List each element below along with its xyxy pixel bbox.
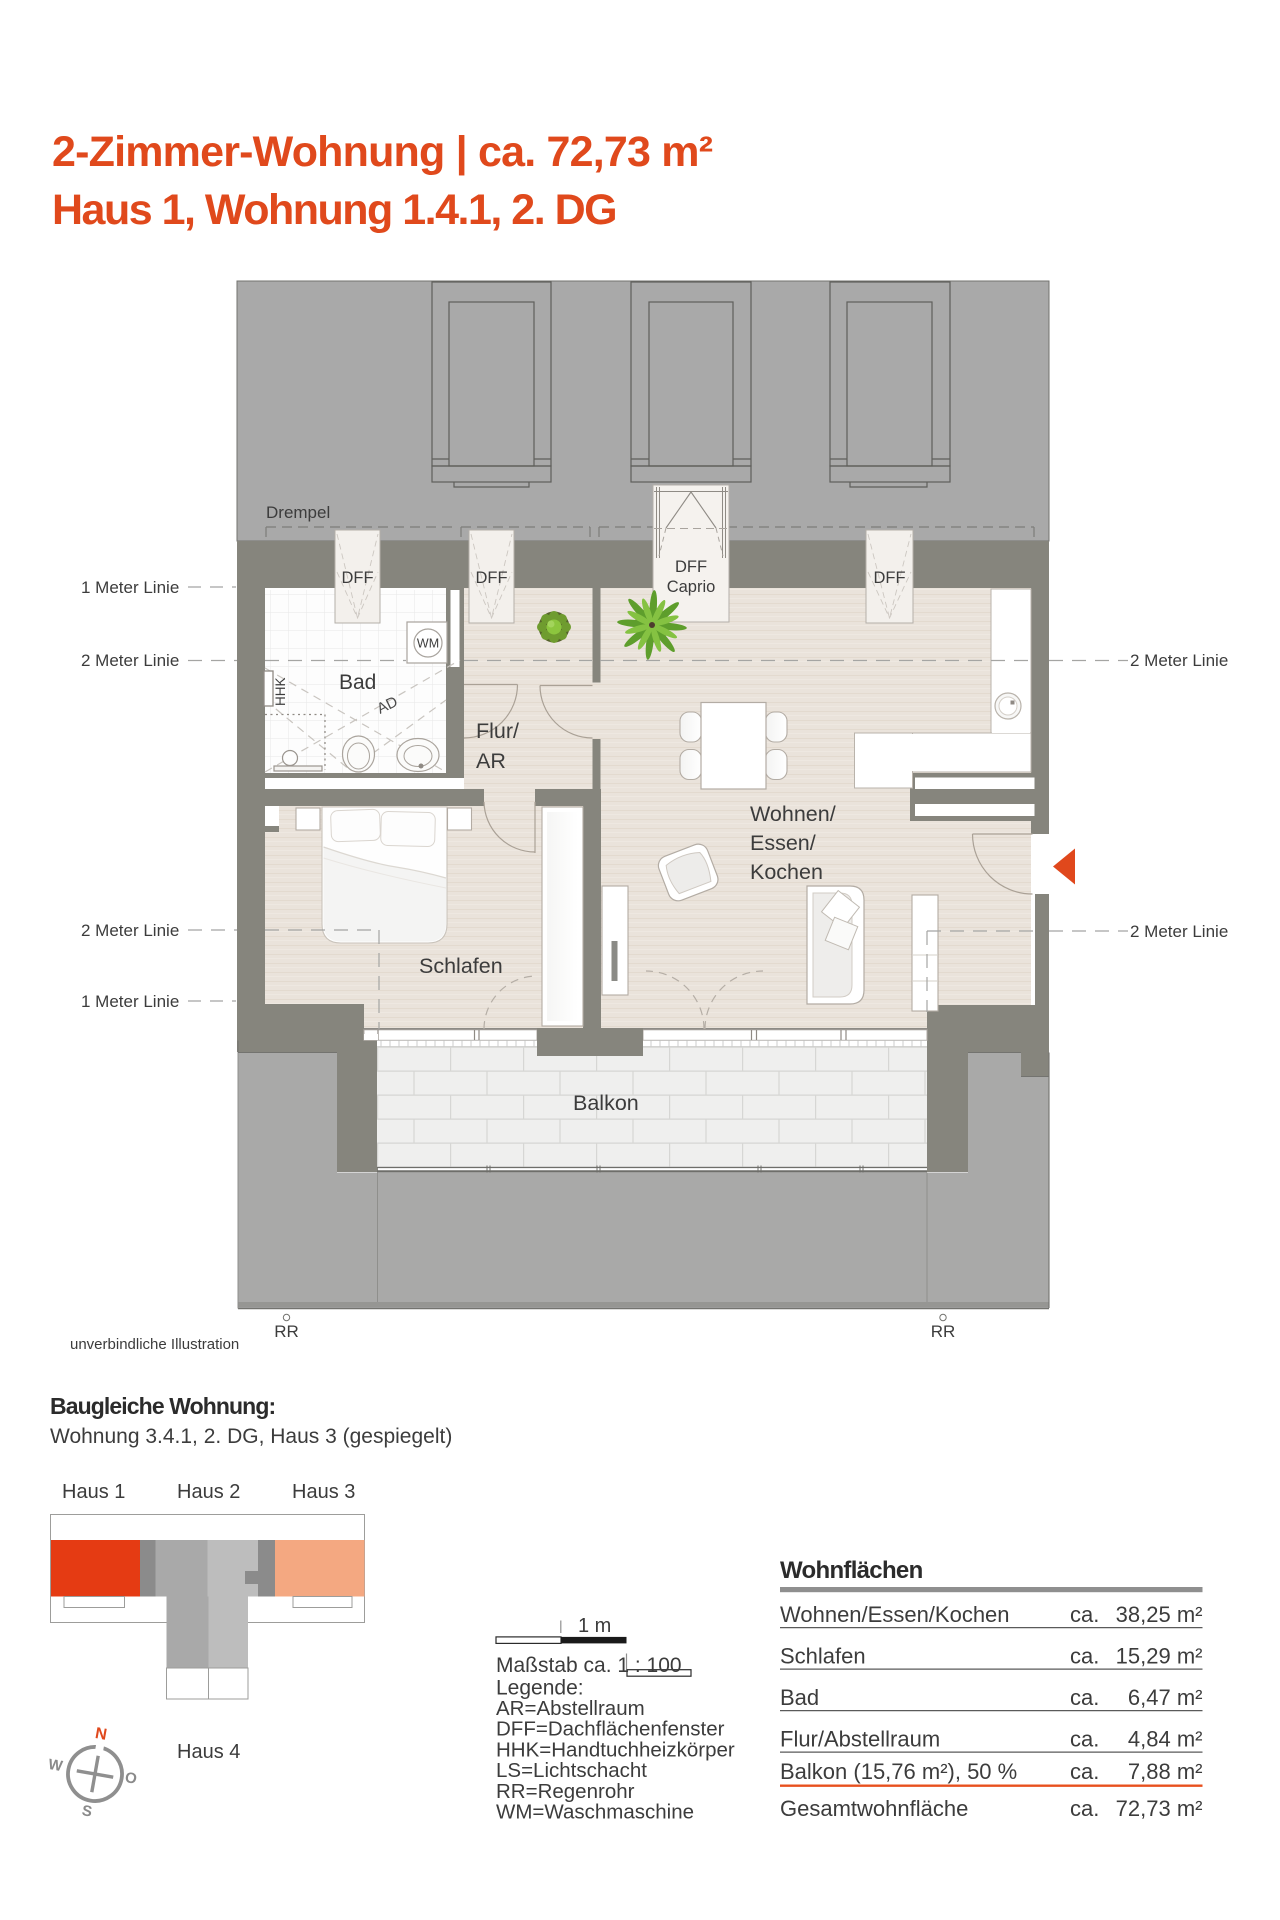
svg-text:Schlafen: Schlafen [419, 954, 503, 978]
svg-text:ca.: ca. [1070, 1644, 1099, 1669]
svg-text:ca.: ca. [1070, 1602, 1099, 1627]
svg-text:WM: WM [417, 637, 439, 651]
svg-text:Kochen: Kochen [750, 860, 823, 884]
svg-text:Bad: Bad [780, 1685, 819, 1710]
svg-text:RR=Regenrohr: RR=Regenrohr [496, 1780, 635, 1803]
svg-text:Maßstab ca. 1 : 100: Maßstab ca. 1 : 100 [496, 1654, 682, 1677]
svg-text:ca.: ca. [1070, 1759, 1099, 1784]
svg-text:Bad: Bad [339, 671, 376, 694]
svg-text:1 Meter Linie: 1 Meter Linie [81, 578, 179, 597]
svg-text:2-Zimmer-Wohnung | ca. 72,73 m: 2-Zimmer-Wohnung | ca. 72,73 m² [52, 128, 713, 176]
svg-text:ca.: ca. [1070, 1685, 1099, 1710]
svg-text:AR=Abstellraum: AR=Abstellraum [496, 1697, 645, 1720]
svg-text:38,25 m²: 38,25 m² [1116, 1602, 1203, 1627]
svg-text:DFF: DFF [675, 558, 707, 576]
svg-text:7,88 m²: 7,88 m² [1128, 1759, 1203, 1784]
svg-text:Wohnflächen: Wohnflächen [780, 1557, 923, 1584]
svg-text:4,84 m²: 4,84 m² [1128, 1727, 1203, 1752]
svg-text:Haus 1, Wohnung 1.4.1, 2. DG: Haus 1, Wohnung 1.4.1, 2. DG [52, 186, 616, 234]
svg-text:Baugleiche Wohnung:: Baugleiche Wohnung: [50, 1393, 275, 1419]
svg-text:Wohnen/Essen/Kochen: Wohnen/Essen/Kochen [780, 1602, 1010, 1627]
svg-text:RR: RR [931, 1322, 956, 1341]
svg-text:AR: AR [476, 749, 506, 773]
svg-text:HHK: HHK [273, 677, 288, 706]
svg-text:72,73 m²: 72,73 m² [1116, 1796, 1203, 1821]
svg-text:Haus 4: Haus 4 [177, 1741, 240, 1763]
svg-text:6,47 m²: 6,47 m² [1128, 1685, 1203, 1710]
svg-text:15,29 m²: 15,29 m² [1116, 1644, 1203, 1669]
svg-text:LS=Lichtschacht: LS=Lichtschacht [496, 1759, 647, 1782]
svg-text:DFF: DFF [873, 569, 905, 587]
svg-text:RR: RR [274, 1322, 299, 1341]
svg-text:1 m: 1 m [578, 1615, 611, 1637]
svg-text:ca.: ca. [1070, 1727, 1099, 1752]
svg-text:DFF: DFF [341, 569, 373, 587]
svg-text:WM=Waschmaschine: WM=Waschmaschine [496, 1801, 694, 1824]
svg-text:Balkon (15,76 m²), 50 %: Balkon (15,76 m²), 50 % [780, 1759, 1017, 1784]
svg-text:Schlafen: Schlafen [780, 1644, 866, 1669]
svg-text:2 Meter Linie: 2 Meter Linie [81, 921, 179, 940]
svg-text:Essen/: Essen/ [750, 831, 816, 855]
svg-text:ca.: ca. [1070, 1796, 1099, 1821]
svg-text:Flur/: Flur/ [476, 719, 519, 743]
svg-text:2 Meter Linie: 2 Meter Linie [1130, 922, 1228, 941]
svg-text:Wohnung 3.4.1, 2. DG, Haus 3 (: Wohnung 3.4.1, 2. DG, Haus 3 (gespiegelt… [50, 1425, 452, 1448]
svg-text:Balkon: Balkon [573, 1091, 639, 1115]
svg-text:DFF: DFF [475, 569, 507, 587]
svg-text:1 Meter Linie: 1 Meter Linie [81, 992, 179, 1011]
svg-text:HHK=Handtuchheizkörper: HHK=Handtuchheizkörper [496, 1738, 735, 1761]
svg-text:Haus 1: Haus 1 [62, 1481, 125, 1503]
svg-text:Drempel: Drempel [266, 503, 330, 522]
svg-text:Haus 3: Haus 3 [292, 1481, 355, 1503]
svg-text:2 Meter Linie: 2 Meter Linie [1130, 651, 1228, 670]
svg-text:Wohnen/: Wohnen/ [750, 802, 836, 826]
svg-text:unverbindliche Illustration: unverbindliche Illustration [70, 1336, 239, 1353]
svg-text:Gesamtwohnfläche: Gesamtwohnfläche [780, 1796, 968, 1821]
svg-text:DFF=Dachflächenfenster: DFF=Dachflächenfenster [496, 1718, 725, 1741]
svg-text:2 Meter Linie: 2 Meter Linie [81, 651, 179, 670]
svg-text:Haus 2: Haus 2 [177, 1481, 240, 1503]
svg-text:Caprio: Caprio [667, 578, 716, 596]
svg-text:Flur/Abstellraum: Flur/Abstellraum [780, 1727, 940, 1752]
